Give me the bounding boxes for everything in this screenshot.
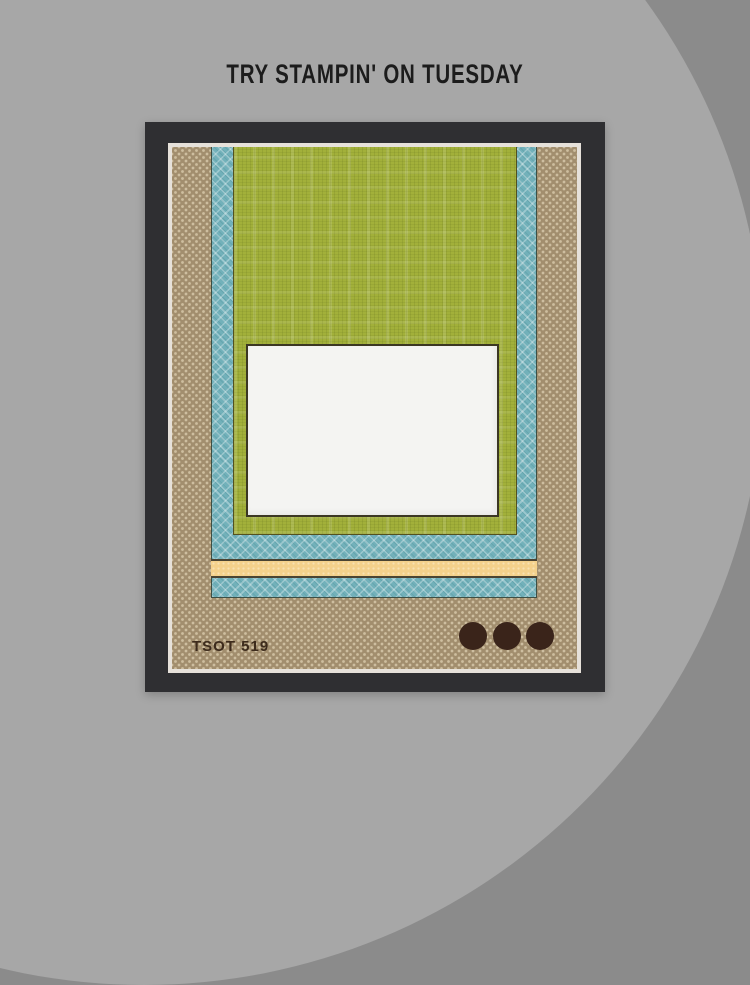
embellishment-circle-1	[459, 622, 487, 650]
card-base-layer: TSOT 519	[172, 147, 577, 669]
page-title: TRY STAMPIN' ON TUESDAY	[90, 61, 660, 88]
frame-mat-line: TSOT 519	[168, 143, 581, 673]
focal-panel-layer	[246, 344, 499, 517]
embellishment-circle-3	[526, 622, 554, 650]
sketch-code-label: TSOT 519	[192, 638, 269, 655]
page-background: TRY STAMPIN' ON TUESDAY TSOT 519	[0, 0, 750, 750]
ribbon-strip-layer	[211, 559, 537, 578]
embellishment-circle-2	[493, 622, 521, 650]
card-sketch-frame: TSOT 519	[145, 122, 605, 692]
